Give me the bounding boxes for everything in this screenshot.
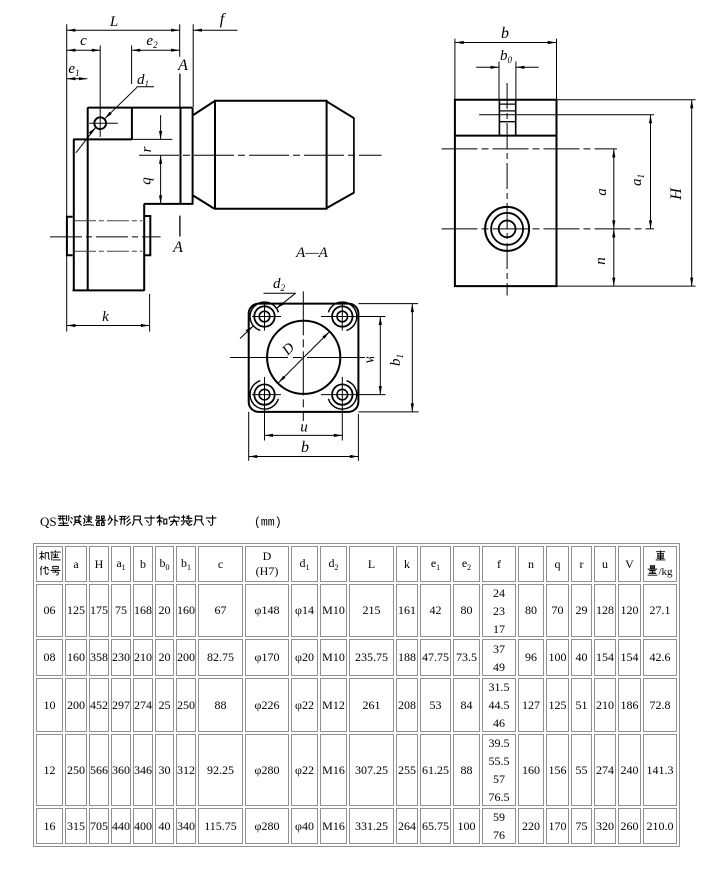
- svg-text:f: f: [220, 11, 227, 28]
- svg-text:e1: e1: [68, 61, 79, 78]
- svg-text:r: r: [139, 146, 155, 152]
- svg-text:a1: a1: [629, 174, 646, 186]
- svg-text:b0: b0: [500, 48, 513, 65]
- svg-text:A: A: [172, 239, 183, 256]
- svg-text:n: n: [593, 257, 609, 265]
- svg-text:b: b: [501, 25, 509, 42]
- svg-text:A: A: [177, 57, 188, 74]
- svg-text:QS: QS: [40, 514, 57, 529]
- svg-text:d1: d1: [137, 72, 149, 89]
- svg-text:c: c: [80, 33, 87, 49]
- svg-text:k: k: [102, 309, 109, 325]
- svg-text:e2: e2: [146, 33, 158, 50]
- svg-text:b1: b1: [388, 354, 405, 366]
- svg-text:b: b: [301, 439, 309, 456]
- svg-text:v: v: [362, 356, 378, 363]
- svg-text:A—A: A—A: [295, 245, 329, 261]
- svg-text:(mm): (mm): [254, 517, 282, 530]
- svg-text:d2: d2: [273, 276, 286, 293]
- svg-text:L: L: [109, 14, 118, 30]
- svg-text:q: q: [139, 177, 155, 185]
- svg-text:D: D: [279, 339, 299, 359]
- svg-text:u: u: [300, 420, 308, 436]
- svg-text:a: a: [594, 188, 610, 196]
- svg-text:H: H: [668, 187, 685, 201]
